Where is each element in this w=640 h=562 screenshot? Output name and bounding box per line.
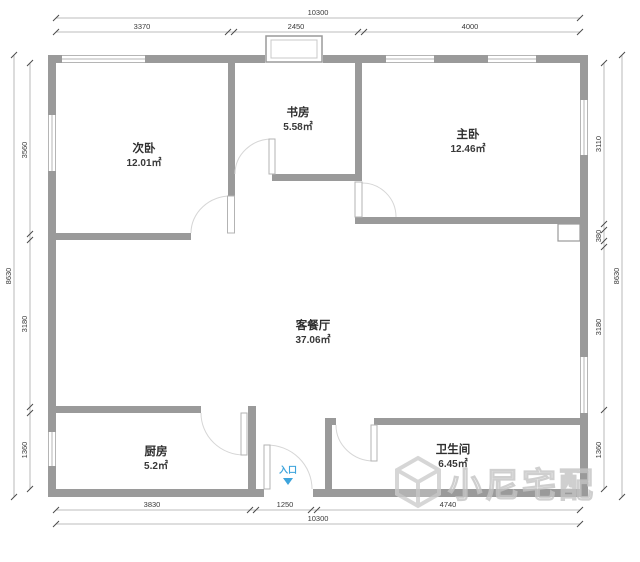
wall-study-left (228, 63, 235, 196)
dim-left-seg-1: 3560 (20, 142, 29, 159)
dim-right-seg-3: 3180 (594, 319, 603, 336)
watermark-text: 小尼宅配 (448, 466, 596, 505)
dim-top-seg-1: 3370 (134, 22, 151, 31)
wall-bathroom-left (325, 418, 332, 489)
dim-right-total: 8630 (612, 268, 621, 285)
window-master-top-1 (386, 55, 434, 63)
wall-master-left (355, 63, 362, 181)
svg-text:12.01㎡: 12.01㎡ (126, 156, 161, 169)
windows (48, 55, 588, 466)
entry-arrow-icon (283, 478, 293, 485)
duct-shaft (558, 224, 580, 241)
dim-bottom-seg-2: 1250 (277, 500, 294, 509)
entry-marker: 入口 (278, 465, 297, 485)
dim-left-seg-2: 3180 (20, 316, 29, 333)
walls (48, 55, 588, 497)
room-label-secondary-bedroom: 次卧 12.01㎡ (126, 141, 161, 169)
window-living-right (580, 357, 588, 413)
dim-top-total: 10300 (308, 8, 329, 17)
floor-plan: 10300 3370 2450 4000 3830 1250 4740 1030… (0, 0, 640, 562)
svg-text:5.58㎡: 5.58㎡ (283, 120, 312, 133)
dim-bottom-total: 10300 (308, 514, 329, 523)
svg-text:次卧: 次卧 (133, 141, 156, 155)
window-kitchen-left (48, 432, 56, 466)
wall-kitchen-top (56, 406, 201, 413)
room-label-kitchen: 厨房 5.2㎡ (144, 444, 168, 472)
svg-text:12.46㎡: 12.46㎡ (450, 142, 485, 155)
room-labels: 次卧 12.01㎡ 书房 5.58㎡ 主卧 12.46㎡ 客餐厅 37.06㎡ … (126, 105, 485, 472)
floor-plan-page: 10300 3370 2450 4000 3830 1250 4740 1030… (0, 0, 640, 562)
entry-label: 入口 (278, 465, 297, 475)
door-secondary-bedroom (191, 196, 235, 240)
room-label-bathroom: 卫生间 6.45㎡ (436, 442, 471, 470)
svg-text:5.2㎡: 5.2㎡ (144, 459, 168, 472)
svg-text:厨房: 厨房 (145, 444, 168, 458)
cube-logo-icon (397, 458, 439, 506)
wall-secondary-bedroom-bottom (56, 233, 191, 240)
dim-top-seg-2: 2450 (288, 22, 305, 31)
window-master-top-2 (488, 55, 536, 63)
room-label-master-bedroom: 主卧 12.46㎡ (450, 127, 485, 155)
window-master-right (580, 100, 588, 155)
svg-text:客餐厅: 客餐厅 (295, 318, 331, 332)
window-secondary-bedroom-left (48, 115, 56, 171)
dim-right-seg-1: 3110 (594, 136, 603, 152)
door-kitchen (201, 406, 248, 455)
room-label-living-dining: 客餐厅 37.06㎡ (295, 318, 331, 346)
window-secondary-bedroom-top (62, 55, 145, 63)
door-master-bedroom (355, 182, 396, 217)
dim-left-seg-3: 1360 (20, 442, 29, 459)
doors (191, 139, 396, 497)
dimensions: 10300 3370 2450 4000 3830 1250 4740 1030… (4, 8, 625, 527)
watermark: 小尼宅配 (397, 458, 596, 506)
dim-right-seg-2: 380 (594, 230, 603, 243)
dim-bottom-seg-1: 3830 (144, 500, 161, 509)
svg-text:37.06㎡: 37.06㎡ (295, 333, 330, 346)
door-study (235, 139, 275, 181)
wall-kitchen-right (248, 406, 256, 489)
wall-study-bottom (272, 174, 362, 181)
svg-text:主卧: 主卧 (457, 127, 480, 141)
wall-master-bottom (355, 217, 580, 224)
svg-text:书房: 书房 (287, 105, 310, 119)
svg-text:卫生间: 卫生间 (436, 442, 471, 456)
dim-left-total: 8630 (4, 268, 13, 285)
flue-box (265, 36, 323, 63)
door-bathroom (336, 418, 377, 461)
dim-top-seg-3: 4000 (462, 22, 479, 31)
room-label-study: 书房 5.58㎡ (283, 105, 312, 133)
dim-right-seg-4: 1360 (594, 442, 603, 459)
